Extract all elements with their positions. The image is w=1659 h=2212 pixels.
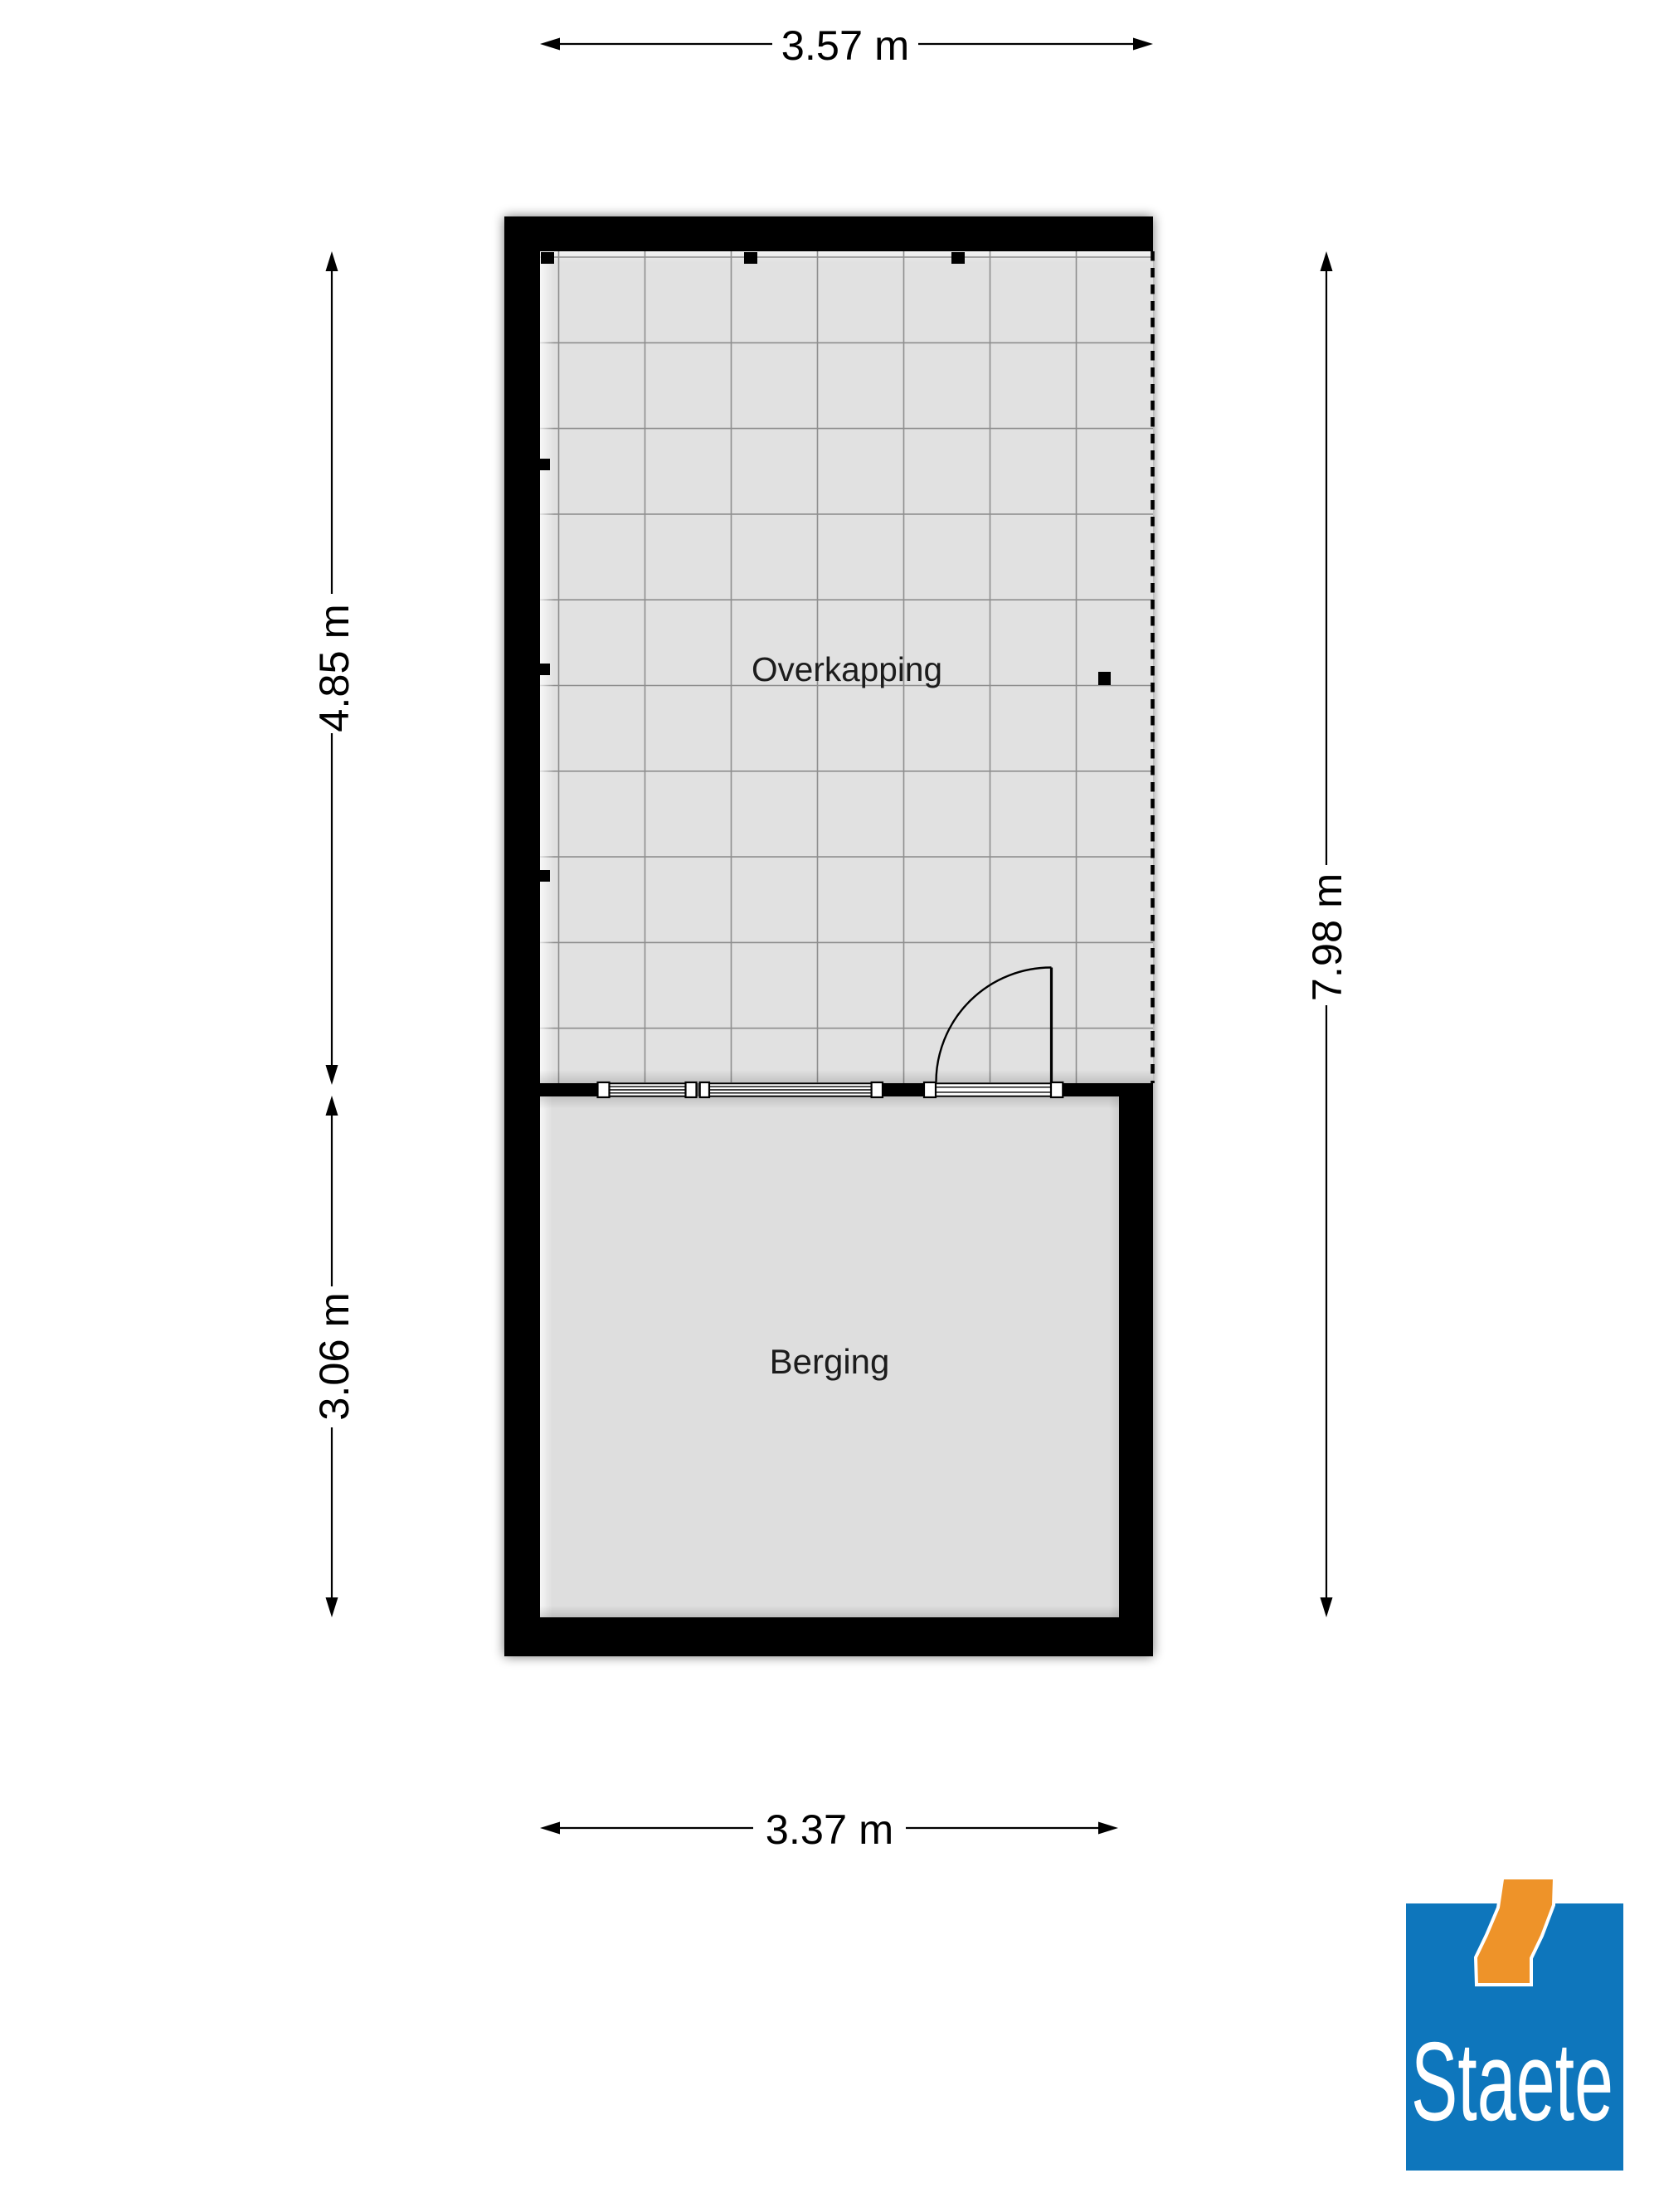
svg-text:Staete: Staete	[1411, 2019, 1613, 2144]
svg-text:3.57 m: 3.57 m	[781, 22, 909, 69]
svg-text:3.37 m: 3.37 m	[766, 1806, 893, 1853]
svg-text:Overkapping: Overkapping	[752, 650, 942, 688]
svg-text:4.85 m: 4.85 m	[310, 604, 358, 732]
svg-text:7.98 m: 7.98 m	[1303, 873, 1350, 1001]
svg-text:Berging: Berging	[770, 1342, 890, 1381]
svg-text:3.06 m: 3.06 m	[310, 1292, 358, 1420]
